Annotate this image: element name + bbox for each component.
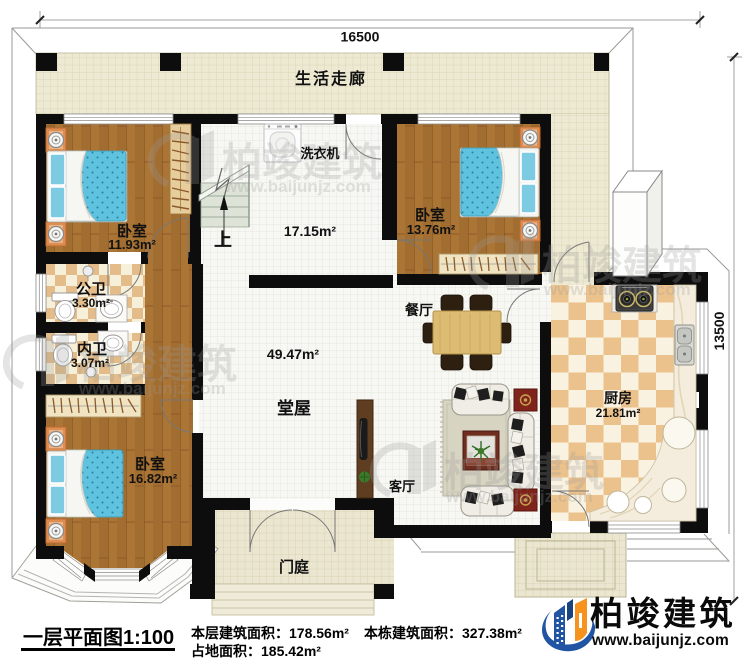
svg-text:17.15m²: 17.15m² <box>284 223 336 239</box>
svg-text:一层平面图1:100: 一层平面图1:100 <box>23 626 174 649</box>
svg-text:生活走廊: 生活走廊 <box>295 69 367 88</box>
svg-text:www.baijunjz.com: www.baijunjz.com <box>543 280 691 299</box>
svg-text:www.baijunjz.com: www.baijunjz.com <box>591 632 729 649</box>
svg-text:厨房: 厨房 <box>604 390 632 406</box>
svg-text:柏竣建筑: 柏竣建筑 <box>590 595 736 632</box>
svg-text:www.baijunjz.com: www.baijunjz.com <box>223 177 371 196</box>
svg-text:3.07m²: 3.07m² <box>71 356 109 370</box>
svg-text:本栋建筑面积：327.38m²: 本栋建筑面积：327.38m² <box>364 625 522 641</box>
svg-text:16.82m²: 16.82m² <box>129 471 178 486</box>
svg-text:餐厅: 餐厅 <box>404 302 433 318</box>
svg-text:www.baijunjz.com: www.baijunjz.com <box>78 379 226 398</box>
svg-text:49.47m²: 49.47m² <box>267 346 319 362</box>
svg-text:上: 上 <box>214 230 232 250</box>
svg-text:11.93m²: 11.93m² <box>108 237 156 252</box>
svg-text:堂屋: 堂屋 <box>277 398 311 418</box>
svg-text:www.baijunjz.com: www.baijunjz.com <box>445 487 593 506</box>
svg-text:16500: 16500 <box>341 29 380 45</box>
svg-text:21.81m²: 21.81m² <box>596 406 641 420</box>
svg-text:13.76m²: 13.76m² <box>407 222 456 237</box>
svg-text:占地面积：185.42m²: 占地面积：185.42m² <box>191 643 321 659</box>
svg-text:洗衣机: 洗衣机 <box>300 146 339 161</box>
svg-text:客厅: 客厅 <box>389 479 415 494</box>
svg-text:3.30m²: 3.30m² <box>72 296 110 310</box>
svg-text:本层建筑面积：178.56m²: 本层建筑面积：178.56m² <box>191 625 349 641</box>
svg-text:13500: 13500 <box>711 311 727 350</box>
svg-text:门庭: 门庭 <box>279 558 310 576</box>
